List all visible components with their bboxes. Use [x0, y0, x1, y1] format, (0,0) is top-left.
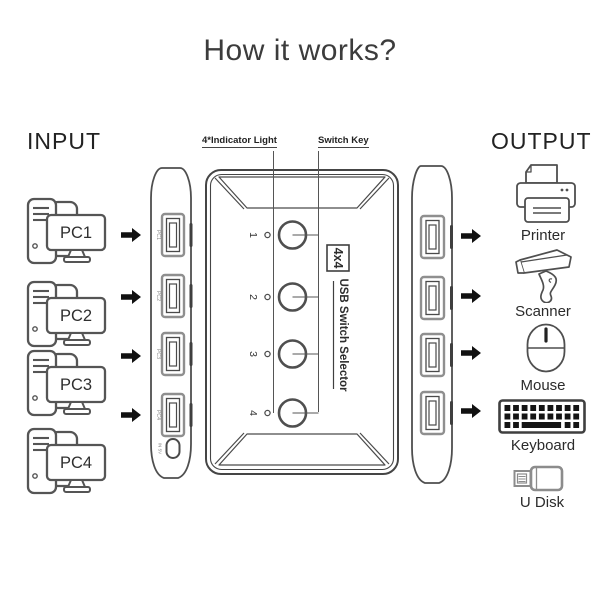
indicator-callout-line — [273, 151, 274, 413]
printer-icon — [514, 162, 578, 224]
input-port-label-4: PC4 — [155, 410, 161, 420]
scanner-label: Scanner — [483, 303, 600, 320]
channel-number-4: 4 — [247, 410, 259, 416]
udisk-icon — [511, 463, 565, 494]
output-heading: OUTPUT — [491, 128, 592, 155]
output-arrow-4-icon — [461, 404, 481, 418]
scanner-icon — [508, 247, 576, 303]
udisk-label: U Disk — [482, 494, 600, 511]
indicator-light-callout: 4*Indicator Light — [202, 135, 277, 148]
output-arrow-2-icon — [461, 289, 481, 303]
how-it-works-diagram: How it works? INPUT OUTPUT PC1 — [0, 0, 600, 600]
channel-number-1: 1 — [247, 232, 259, 238]
pc2-label: PC2 — [60, 307, 92, 325]
keyboard-label: Keyboard — [483, 437, 600, 454]
pc3-label: PC3 — [60, 376, 92, 394]
pc3-icon: PC3 — [26, 348, 112, 422]
indicator-led-4 — [265, 410, 270, 415]
device-outer-case — [206, 170, 398, 474]
pc1-icon: PC1 — [26, 196, 112, 270]
output-arrow-1-icon — [461, 229, 481, 243]
pc1-label: PC1 — [60, 224, 92, 242]
page-title: How it works? — [0, 34, 600, 68]
channel-number-3: 3 — [247, 351, 259, 357]
output-arrow-3-icon — [461, 346, 481, 360]
printer-label: Printer — [483, 227, 600, 244]
indicator-led-2 — [265, 294, 270, 299]
input-port-label-1: PC1 — [155, 230, 161, 240]
pc4-label: PC4 — [60, 454, 92, 472]
mouse-icon — [525, 322, 567, 374]
indicator-led-1 — [265, 232, 270, 237]
pc4-icon: PC4 — [26, 426, 112, 500]
channel-number-2: 2 — [247, 294, 259, 300]
input-arrow-3-icon — [121, 349, 141, 363]
input-arrow-4-icon — [121, 408, 141, 422]
indicator-led-3 — [265, 351, 270, 356]
keyboard-icon — [498, 399, 586, 434]
input-heading: INPUT — [27, 128, 101, 155]
power-port — [167, 439, 180, 458]
device-input-panel: PC1 PC2 PC3 PC4 IN 5V — [145, 162, 195, 482]
switch-key-callout: Switch Key — [318, 135, 369, 148]
input-port-label-2: PC2 — [155, 291, 161, 301]
device-name: USB Switch Selector — [337, 278, 349, 392]
power-port-label: IN 5V — [158, 443, 163, 455]
mouse-label: Mouse — [483, 377, 600, 394]
kvm-switch-device: 1 2 3 4 4x4 USB Switch Selector — [203, 163, 403, 479]
input-arrow-1-icon — [121, 228, 141, 242]
switch-key-callout-line — [318, 151, 319, 412]
device-output-panel — [406, 160, 458, 486]
input-arrow-2-icon — [121, 290, 141, 304]
output-panel-outline — [412, 166, 452, 483]
input-port-label-3: PC3 — [155, 349, 161, 359]
pc2-icon: PC2 — [26, 279, 112, 353]
device-badge: 4x4 — [331, 248, 345, 269]
